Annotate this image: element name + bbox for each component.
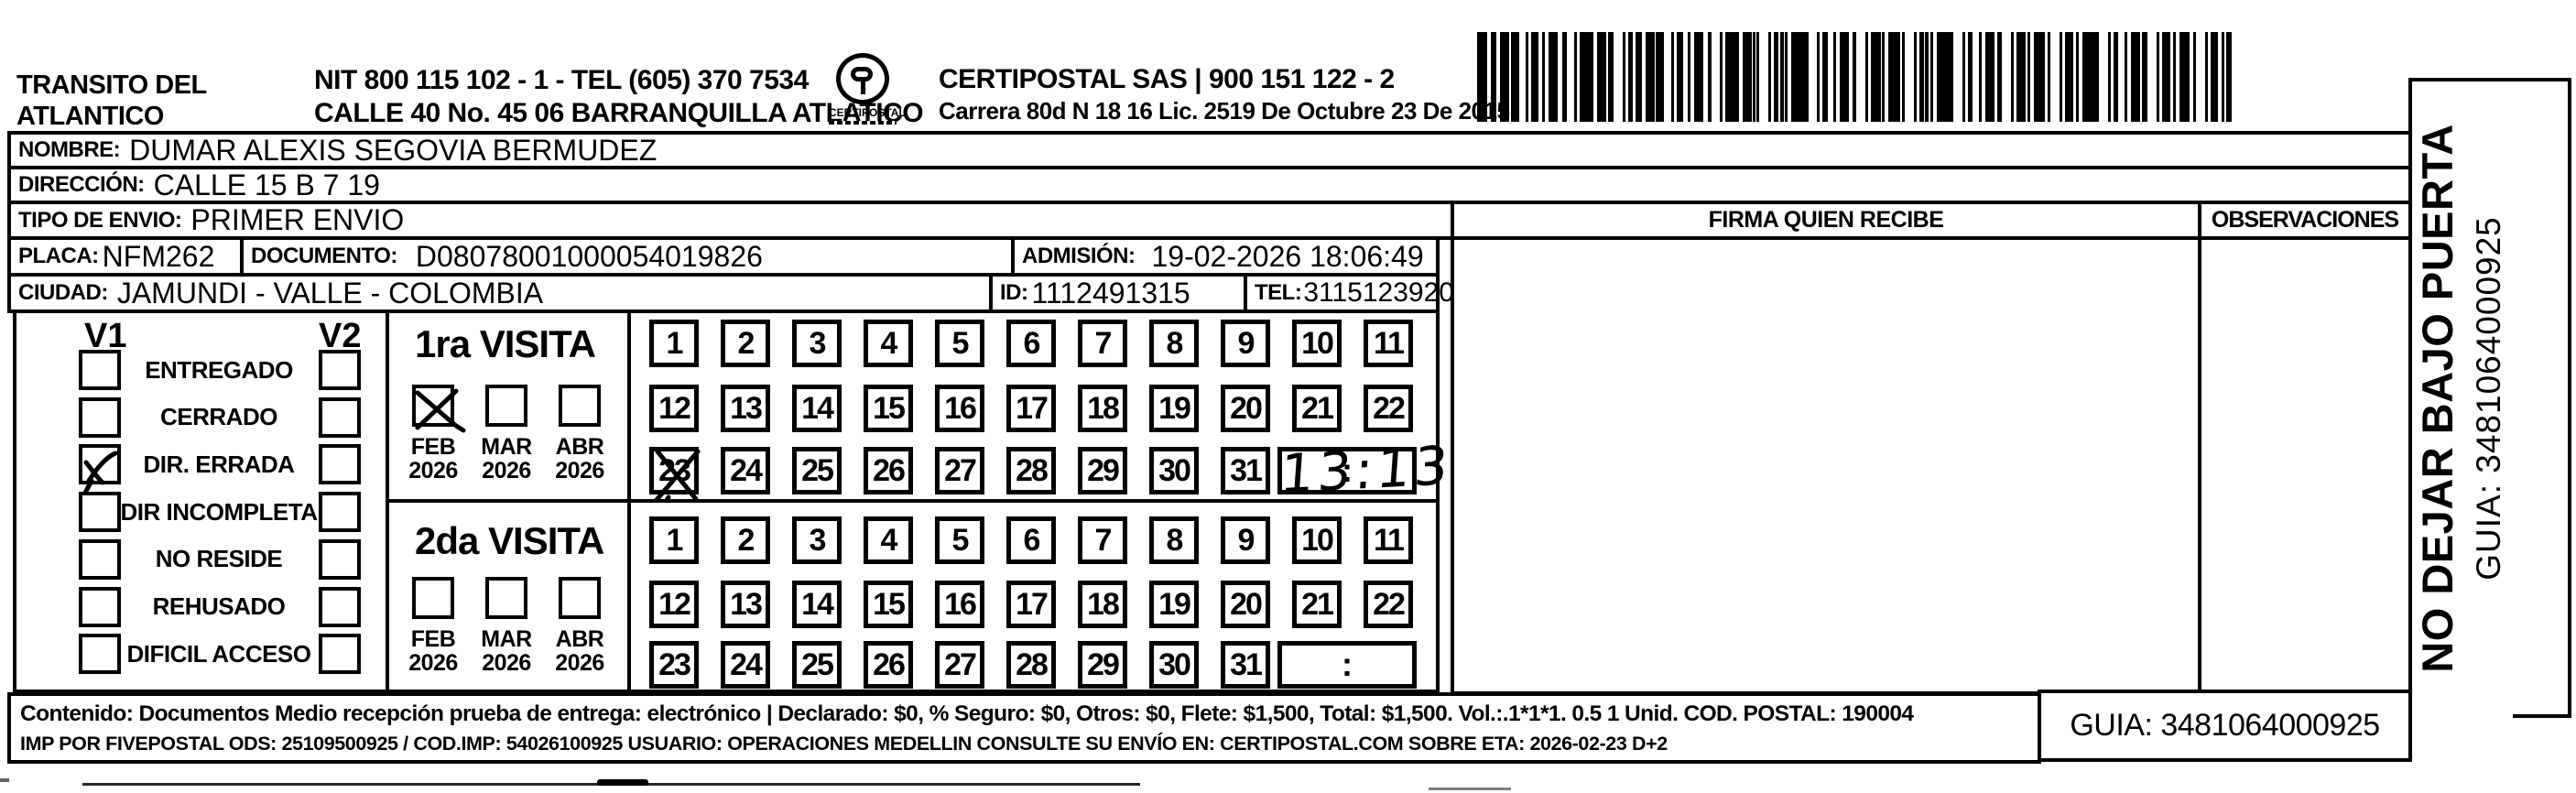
visit2-day-29[interactable]: 29 — [1078, 641, 1127, 689]
status-row-rehusado: REHUSADO — [16, 587, 386, 629]
day-number: 7 — [1095, 326, 1111, 362]
month-year: 2026 — [547, 651, 613, 675]
visit1-day-24[interactable]: 24 — [721, 447, 770, 494]
second-visit-panel: 2da VISITA FEB2026MAR2026ABR2026 — [386, 499, 631, 693]
visit1-month-abr: ABR2026 — [547, 385, 613, 483]
cell-ciudad: CIUDAD: JAMUNDI - VALLE - COLOMBIA — [7, 273, 993, 313]
month-name: FEB — [400, 435, 466, 459]
day-number: 21 — [1301, 391, 1332, 427]
day-number: 8 — [1167, 326, 1182, 362]
visit1-day-3[interactable]: 3 — [792, 320, 842, 367]
day-number: 17 — [1016, 391, 1047, 427]
checkbox-v2-dir-errada[interactable] — [319, 444, 361, 484]
day-number: 26 — [873, 647, 904, 683]
visit2-day-16[interactable]: 16 — [935, 581, 984, 628]
license-line: Carrera 80d N 18 16 Lic. 2519 De Octubre… — [939, 97, 1509, 125]
status-option-label: ENTREGADO — [119, 350, 319, 390]
day-number: 9 — [1238, 523, 1254, 559]
day-number: 6 — [1024, 326, 1039, 362]
month-year: 2026 — [400, 651, 466, 675]
day-number: 18 — [1087, 587, 1118, 623]
status-row-dir-incompleta: DIR INCOMPLETA — [16, 492, 386, 534]
first-visit-day-grid: 1234567891011121314151617181920212223242… — [627, 310, 1440, 503]
visit1-day-29[interactable]: 29 — [1078, 447, 1127, 494]
day-number: 24 — [730, 453, 761, 489]
day-number: 25 — [801, 647, 832, 683]
certipostal-logo-icon — [836, 53, 889, 104]
month-name: FEB — [400, 627, 466, 651]
checkbox-v2-cerrado[interactable] — [319, 397, 361, 438]
delivery-guide-form: TRANSITO DEL ATLANTICO NIT 800 115 102 -… — [0, 0, 2576, 793]
visit1-day-6[interactable]: 6 — [1006, 320, 1056, 367]
logo-text: CERTIPOSTAL — [829, 106, 897, 119]
day-number: 9 — [1238, 326, 1254, 362]
visit2-day-1[interactable]: 1 — [649, 516, 699, 564]
visit1-time-box[interactable]: :13:13 — [1277, 447, 1417, 494]
placa-label: PLACA: — [18, 244, 99, 269]
day-number: 28 — [1016, 453, 1047, 489]
nombre-label: NOMBRE: — [18, 137, 120, 163]
cell-id: ID: 1112491315 — [989, 273, 1247, 313]
guia-number-box: GUIA: 3481064000925 — [2038, 690, 2412, 762]
visit2-day-19[interactable]: 19 — [1149, 581, 1199, 628]
month-year: 2026 — [473, 459, 539, 483]
checkbox-v2-rehusado[interactable] — [319, 587, 361, 627]
visit2-day-22[interactable]: 22 — [1364, 581, 1413, 628]
no-dejar-warning: NO DEJAR BAJO PUERTA — [2412, 82, 2462, 714]
visit1-day-11[interactable]: 11 — [1364, 320, 1413, 367]
visit2-day-13[interactable]: 13 — [721, 581, 770, 628]
visit1-day-9[interactable]: 9 — [1221, 320, 1270, 367]
checkbox-v2-no-reside[interactable] — [319, 539, 361, 580]
observaciones-area[interactable] — [2198, 236, 2412, 695]
day-number: 4 — [881, 523, 897, 559]
day-number: 21 — [1301, 587, 1332, 623]
day-number: 15 — [873, 391, 904, 427]
day-number: 16 — [944, 391, 975, 427]
month-name: MAR — [473, 435, 539, 459]
day-number: 25 — [801, 453, 832, 489]
footer-box: Contenido: Documentos Medio recepción pr… — [7, 692, 2041, 764]
day-number: 16 — [944, 587, 975, 623]
checkbox-v2-dificil-acceso[interactable] — [319, 634, 361, 674]
visit1-day-13[interactable]: 13 — [721, 385, 770, 432]
status-option-label: DIFICIL ACCESO — [119, 634, 319, 674]
status-row-entregado: ENTREGADO — [16, 350, 386, 392]
scan-artifact-mark — [1429, 788, 1511, 790]
footer-line1: Contenido: Documentos Medio recepción pr… — [20, 701, 2038, 727]
x-mark-icon — [410, 384, 469, 439]
month-name: ABR — [547, 627, 613, 651]
visit2-month-abr: ABR2026 — [547, 577, 613, 675]
visit1-month-checkbox-abr[interactable] — [559, 385, 601, 427]
month-label: ABR2026 — [547, 627, 613, 675]
footer-line2: IMP POR FIVEPOSTAL ODS: 25109500925 / CO… — [20, 733, 2038, 755]
visit2-month-checkbox-abr[interactable] — [559, 577, 601, 619]
month-label: MAR2026 — [473, 627, 539, 675]
visit1-day-16[interactable]: 16 — [935, 385, 984, 432]
visit1-day-20[interactable]: 20 — [1221, 385, 1270, 432]
visit2-day-23[interactable]: 23 — [649, 641, 699, 689]
day-number: 14 — [801, 391, 832, 427]
day-number: 12 — [658, 587, 690, 623]
second-visit-title: 2da VISITA — [415, 519, 603, 563]
sender-name-line2: ATLANTICO — [16, 101, 207, 132]
day-number: 5 — [952, 523, 968, 559]
month-name: ABR — [547, 435, 613, 459]
visit2-day-3[interactable]: 3 — [792, 516, 842, 564]
day-number: 13 — [730, 587, 761, 623]
day-number: 24 — [730, 647, 761, 683]
day-number: 29 — [1087, 647, 1118, 683]
month-label: MAR2026 — [473, 435, 539, 483]
month-year: 2026 — [473, 651, 539, 675]
visit1-day-14[interactable]: 14 — [792, 385, 842, 432]
day-number: 1 — [667, 523, 682, 559]
checkbox-v1-entregado[interactable] — [79, 350, 121, 390]
status-row-dir-errada: DIR. ERRADA — [16, 444, 386, 486]
status-option-label: DIR. ERRADA — [119, 444, 319, 484]
tel-label: TEL: — [1255, 280, 1301, 306]
day-number: 22 — [1373, 391, 1404, 427]
status-row-cerrado: CERRADO — [16, 397, 386, 440]
day-number: 23 — [658, 647, 690, 683]
day-number: 18 — [1087, 391, 1118, 427]
visit2-day-8[interactable]: 8 — [1149, 516, 1199, 564]
day-number: 2 — [738, 523, 754, 559]
visit2-day-28[interactable]: 28 — [1006, 641, 1056, 689]
visit2-day-10[interactable]: 10 — [1292, 516, 1342, 564]
id-label: ID: — [1000, 280, 1028, 306]
day-number: 12 — [658, 391, 690, 427]
id-value[interactable]: 1112491315 — [1032, 277, 1190, 310]
visit2-day-31[interactable]: 31 — [1221, 641, 1270, 689]
day-number: 30 — [1158, 453, 1190, 489]
scan-artifact-edge — [0, 778, 9, 782]
visit2-day-20[interactable]: 20 — [1221, 581, 1270, 628]
month-year: 2026 — [400, 459, 466, 483]
checkbox-v2-entregado[interactable] — [319, 350, 361, 390]
day-number: 31 — [1230, 647, 1261, 683]
row-tipo-envio: TIPO DE ENVIO: PRIMER ENVIO — [7, 201, 1454, 240]
visit1-day-21[interactable]: 21 — [1292, 385, 1342, 432]
status-panel: V1 V2 ENTREGADOCERRADODIR. ERRADADIR INC… — [13, 310, 389, 693]
side-guia-number: GUIA: 3481064000925 — [2470, 82, 2508, 714]
guia-number: GUIA: 3481064000925 — [2070, 708, 2379, 744]
visit1-day-31[interactable]: 31 — [1221, 447, 1270, 494]
tipo-envio-value[interactable]: PRIMER ENVIO — [190, 203, 404, 237]
day-number: 19 — [1158, 391, 1190, 427]
visit2-day-6[interactable]: 6 — [1006, 516, 1056, 564]
day-number: 26 — [873, 453, 904, 489]
visit2-day-7[interactable]: 7 — [1078, 516, 1127, 564]
visit1-day-4[interactable]: 4 — [864, 320, 913, 367]
tel-value[interactable]: 3115123920 — [1303, 277, 1454, 309]
status-option-label: DIR INCOMPLETA — [119, 492, 319, 532]
visit2-month-feb: FEB2026 — [400, 577, 466, 675]
visit1-day-27[interactable]: 27 — [935, 447, 984, 494]
visit2-day-4[interactable]: 4 — [864, 516, 913, 564]
day-number: 28 — [1016, 647, 1047, 683]
admision-value[interactable]: 19-02-2026 18:06:49 — [1152, 240, 1424, 274]
shipment-barcode — [1477, 32, 2232, 122]
scan-artifact-blob — [597, 779, 648, 786]
visit2-month-checkbox-mar[interactable] — [485, 577, 527, 619]
visit2-time-box[interactable]: : — [1277, 641, 1417, 689]
day-number: 3 — [810, 523, 825, 559]
visit1-day-7[interactable]: 7 — [1078, 320, 1127, 367]
cell-admision: ADMISIÓN: 19-02-2026 18:06:49 — [1011, 236, 1440, 277]
visit2-day-27[interactable]: 27 — [935, 641, 984, 689]
visit2-day-30[interactable]: 30 — [1149, 641, 1199, 689]
second-visit-day-grid: 1234567891011121314151617181920212223242… — [627, 499, 1440, 693]
visit1-day-12[interactable]: 12 — [649, 385, 699, 432]
day-number: 14 — [801, 587, 832, 623]
visit1-day-1[interactable]: 1 — [649, 320, 699, 367]
visit2-day-25[interactable]: 25 — [792, 641, 842, 689]
day-number: 1 — [667, 326, 682, 362]
cell-placa: PLACA: NFM262 — [7, 236, 244, 277]
strip-bottom-border — [2513, 714, 2571, 718]
visit1-day-8[interactable]: 8 — [1149, 320, 1199, 367]
visit1-day-22[interactable]: 22 — [1364, 385, 1413, 432]
cell-tel: TEL: 3115123920 — [1244, 273, 1440, 313]
logo-tagline-smudge — [829, 121, 897, 125]
day-number: 23 — [658, 453, 690, 489]
visit1-month-feb: FEB2026 — [400, 385, 466, 483]
checkbox-v2-dir-incompleta[interactable] — [319, 492, 361, 532]
visit1-day-5[interactable]: 5 — [935, 320, 984, 367]
sender-name: TRANSITO DEL ATLANTICO — [16, 70, 207, 132]
visit2-day-18[interactable]: 18 — [1078, 581, 1127, 628]
visit2-day-9[interactable]: 9 — [1221, 516, 1270, 564]
status-row-no-reside: NO RESIDE — [16, 539, 386, 581]
visit1-day-28[interactable]: 28 — [1006, 447, 1056, 494]
visit1-day-19[interactable]: 19 — [1149, 385, 1199, 432]
day-number: 7 — [1095, 523, 1111, 559]
first-visit-panel: 1ra VISITA FEB2026MAR2026ABR2026 — [386, 310, 631, 503]
day-number: 22 — [1373, 587, 1404, 623]
day-number: 27 — [944, 647, 975, 683]
visit1-day-26[interactable]: 26 — [864, 447, 913, 494]
row-direccion: DIRECCIÓN: CALLE 15 B 7 19 — [7, 166, 2412, 204]
day-number: 20 — [1230, 587, 1261, 623]
checkbox-v1-dir-errada[interactable] — [79, 444, 121, 484]
day-number: 2 — [738, 326, 754, 362]
month-name: MAR — [473, 627, 539, 651]
visit1-day-25[interactable]: 25 — [792, 447, 842, 494]
ciudad-label: CIUDAD: — [18, 280, 108, 306]
direccion-value[interactable]: CALLE 15 B 7 19 — [154, 168, 380, 202]
visit1-day-30[interactable]: 30 — [1149, 447, 1199, 494]
visit2-day-2[interactable]: 2 — [721, 516, 770, 564]
day-number: 30 — [1158, 647, 1190, 683]
visit1-day-17[interactable]: 17 — [1006, 385, 1056, 432]
ciudad-value[interactable]: JAMUNDI - VALLE - COLOMBIA — [117, 277, 543, 310]
admision-label: ADMISIÓN: — [1022, 244, 1136, 269]
side-strip: NO DEJAR BAJO PUERTA GUIA: 3481064000925 — [2412, 82, 2570, 714]
visit2-day-5[interactable]: 5 — [935, 516, 984, 564]
visit1-day-2[interactable]: 2 — [721, 320, 770, 367]
row-nombre: NOMBRE: DUMAR ALEXIS SEGOVIA BERMUDEZ — [7, 131, 2412, 169]
documento-label: DOCUMENTO: — [251, 244, 397, 269]
checkbox-v1-dificil-acceso[interactable] — [79, 634, 121, 674]
direccion-label: DIRECCIÓN: — [18, 172, 145, 198]
day-number: 31 — [1230, 453, 1261, 489]
observaciones-header: OBSERVACIONES — [2212, 207, 2398, 234]
documento-value[interactable]: D08078001000054019826 — [416, 240, 763, 274]
observaciones-header-cell: OBSERVACIONES — [2198, 201, 2412, 240]
visit1-month-checkbox-mar[interactable] — [485, 385, 527, 427]
status-option-label: CERRADO — [119, 397, 319, 438]
day-number: 15 — [873, 587, 904, 623]
month-year: 2026 — [547, 459, 613, 483]
visit1-day-18[interactable]: 18 — [1078, 385, 1127, 432]
visit2-day-15[interactable]: 15 — [864, 581, 913, 628]
day-number: 27 — [944, 453, 975, 489]
firma-header: FIRMA QUIEN RECIBE — [1709, 207, 1944, 234]
status-row-dificil-acceso: DIFICIL ACCESO — [16, 634, 386, 676]
time-separator: : — [1342, 646, 1353, 684]
day-number: 11 — [1374, 523, 1403, 559]
checkbox-v1-no-reside[interactable] — [79, 539, 121, 580]
cell-documento: DOCUMENTO: D08078001000054019826 — [240, 236, 1015, 277]
visit1-day-10[interactable]: 10 — [1292, 320, 1342, 367]
visit2-day-12[interactable]: 12 — [649, 581, 699, 628]
checkbox-v1-dir-incompleta[interactable] — [79, 492, 121, 532]
visit2-day-17[interactable]: 17 — [1006, 581, 1056, 628]
nombre-value[interactable]: DUMAR ALEXIS SEGOVIA BERMUDEZ — [129, 134, 657, 168]
visit1-month-mar: MAR2026 — [473, 385, 539, 483]
visit2-day-24[interactable]: 24 — [721, 641, 770, 689]
day-number: 17 — [1016, 587, 1047, 623]
day-number: 6 — [1024, 523, 1039, 559]
day-number: 8 — [1167, 523, 1182, 559]
sender-name-line1: TRANSITO DEL — [16, 70, 207, 101]
tipo-envio-label: TIPO DE ENVIO: — [18, 208, 181, 234]
visit2-day-11[interactable]: 11 — [1364, 516, 1413, 564]
visit1-month-checkbox-feb[interactable] — [412, 385, 454, 427]
visit2-day-26[interactable]: 26 — [864, 641, 913, 689]
visit2-month-mar: MAR2026 — [473, 577, 539, 675]
visit2-month-checkbox-feb[interactable] — [412, 577, 454, 619]
month-label: FEB2026 — [400, 435, 466, 483]
checkbox-v1-rehusado[interactable] — [79, 587, 121, 627]
firma-header-cell: FIRMA QUIEN RECIBE — [1451, 201, 2201, 240]
visit2-day-21[interactable]: 21 — [1292, 581, 1342, 628]
day-number: 13 — [730, 391, 761, 427]
day-number: 19 — [1158, 587, 1190, 623]
company-line: CERTIPOSTAL SAS | 900 151 122 - 2 — [939, 64, 1395, 95]
day-number: 10 — [1301, 523, 1332, 559]
placa-value[interactable]: NFM262 — [103, 240, 215, 274]
certipostal-logo: CERTIPOSTAL — [829, 53, 897, 125]
visit1-day-23[interactable]: 23 — [649, 447, 699, 494]
visit1-day-15[interactable]: 15 — [864, 385, 913, 432]
checkbox-v1-cerrado[interactable] — [79, 397, 121, 438]
status-option-label: REHUSADO — [119, 587, 319, 627]
strip-top-border — [2408, 78, 2571, 81]
day-number: 29 — [1087, 453, 1118, 489]
month-label: FEB2026 — [400, 627, 466, 675]
day-number: 5 — [952, 326, 968, 362]
firma-signature-area[interactable] — [1451, 236, 2201, 695]
first-visit-title: 1ra VISITA — [415, 322, 595, 366]
handwritten-time: 13:13 — [1278, 434, 1454, 505]
visit2-day-14[interactable]: 14 — [792, 581, 842, 628]
day-number: 10 — [1301, 326, 1332, 362]
day-number: 20 — [1230, 391, 1261, 427]
month-label: ABR2026 — [547, 435, 613, 483]
day-number: 3 — [810, 326, 825, 362]
day-number: 4 — [881, 326, 897, 362]
day-number: 11 — [1374, 326, 1403, 362]
status-option-label: NO RESIDE — [119, 539, 319, 580]
